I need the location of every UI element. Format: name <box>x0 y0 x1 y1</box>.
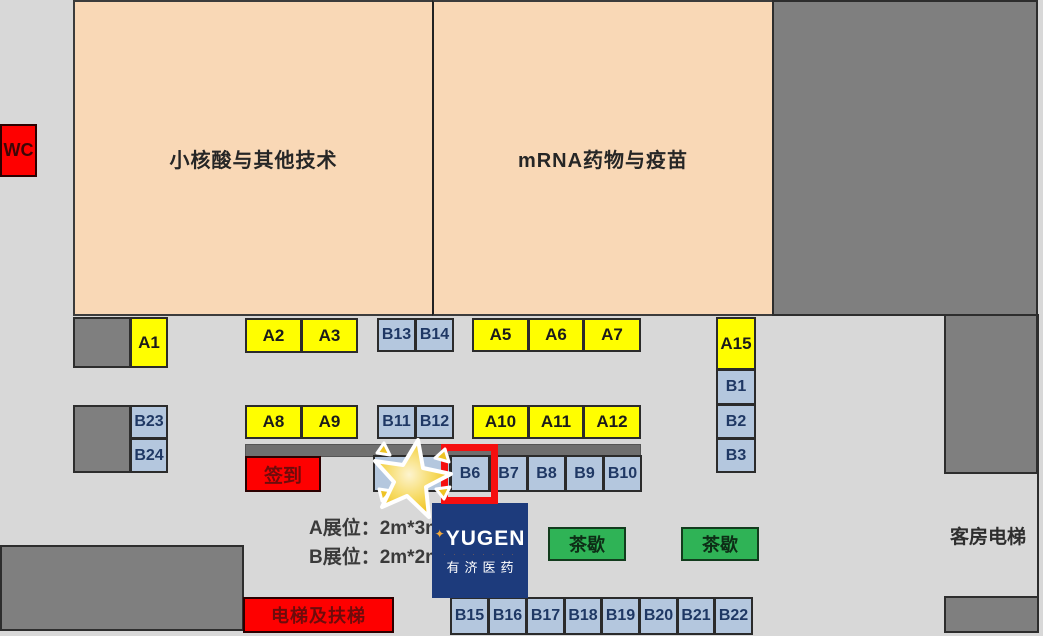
booth-b12: B12 <box>415 405 454 439</box>
zone-left-title: 小核酸与其他技术 <box>170 144 338 173</box>
wall-block-row2 <box>73 405 131 473</box>
wall-block-bottom-left <box>0 545 244 631</box>
star-marker-icon <box>370 437 462 523</box>
booth-a3: A3 <box>301 318 358 353</box>
sign-in-desk: 签到 <box>245 456 321 492</box>
tea-break-1-label: 茶歇 <box>569 531 605 557</box>
booth-a11: A11 <box>528 405 584 439</box>
booth-b2: B2 <box>716 404 756 439</box>
wall-block-top-right <box>772 0 1038 316</box>
wall-block-right-bottom <box>944 596 1039 633</box>
floor-plan: 小核酸与其他技术 mRNA药物与疫苗 WC A1 A2 A3 A5 A6 A7 … <box>0 0 1043 636</box>
elevator-escalator: 电梯及扶梯 <box>243 597 394 633</box>
wc-room: WC <box>0 124 37 177</box>
booth-a2: A2 <box>245 318 302 353</box>
booth-b1: B1 <box>716 369 756 405</box>
booth-b10: B10 <box>603 455 642 492</box>
booth-a7: A7 <box>583 318 641 352</box>
booth-a12: A12 <box>583 405 641 439</box>
booth-b11: B11 <box>377 405 416 439</box>
wall-block-right-middle <box>944 314 1038 474</box>
wall-block-row1 <box>73 317 131 368</box>
wc-label: WC <box>4 140 34 161</box>
zone-right-hall: mRNA药物与疫苗 <box>432 0 774 316</box>
right-edge-wall-line <box>1037 314 1039 633</box>
yugen-brand-chinese: 有济医药 <box>446 561 518 574</box>
booth-b16: B16 <box>488 597 527 635</box>
booth-b21: B21 <box>677 597 715 635</box>
booth-b9: B9 <box>565 455 604 492</box>
booth-b20: B20 <box>639 597 678 635</box>
booth-a6: A6 <box>528 318 584 352</box>
booth-b19: B19 <box>601 597 640 635</box>
booth-b24: B24 <box>130 438 168 473</box>
booth-b13: B13 <box>377 318 416 352</box>
elevator-escalator-label: 电梯及扶梯 <box>271 602 366 628</box>
logo-tagline-dots: · · · · · · · · <box>444 552 517 558</box>
booth-b18: B18 <box>564 597 602 635</box>
sign-in-label: 签到 <box>264 461 302 488</box>
booth-b17: B17 <box>526 597 565 635</box>
booth-a15: A15 <box>716 317 756 370</box>
booth-b23: B23 <box>130 405 168 439</box>
booth-a9: A9 <box>301 405 358 439</box>
tea-break-2-label: 茶歇 <box>702 531 738 557</box>
sparkle-icon: ✦ <box>435 527 446 541</box>
booth-a5: A5 <box>472 318 529 352</box>
legend-booth-b-size: B展位：2m*2m <box>309 542 442 569</box>
guest-elevator-label: 客房电梯 <box>950 522 1026 549</box>
booth-a1: A1 <box>130 317 168 368</box>
booth-b14: B14 <box>415 318 454 352</box>
tea-break-2: 茶歇 <box>681 527 759 561</box>
zone-left-hall: 小核酸与其他技术 <box>73 0 434 316</box>
yugen-logo-wordmark: ✦YUGEN <box>435 528 526 549</box>
tea-break-1: 茶歇 <box>548 527 626 561</box>
booth-b8: B8 <box>527 455 566 492</box>
booth-b3: B3 <box>716 438 756 473</box>
zone-right-title: mRNA药物与疫苗 <box>518 144 688 173</box>
booth-b22: B22 <box>714 597 753 635</box>
booth-b15: B15 <box>450 597 489 635</box>
yugen-brand-text: YUGEN <box>446 527 526 550</box>
booth-a8: A8 <box>245 405 302 439</box>
booth-a10: A10 <box>472 405 529 439</box>
